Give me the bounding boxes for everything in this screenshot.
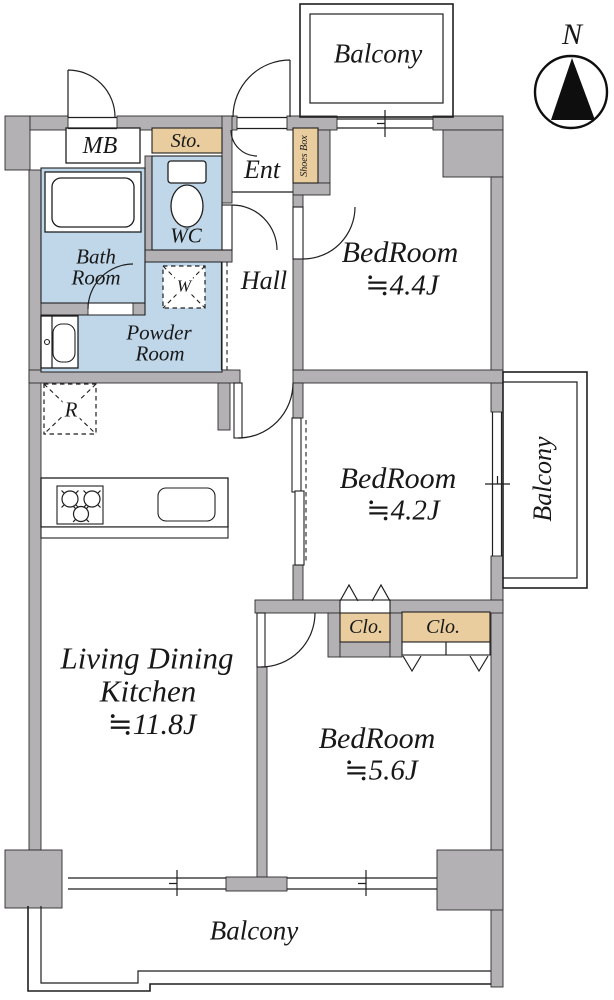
entrance-door-arc [233, 60, 290, 117]
closet-a-label: Clo. [349, 617, 383, 637]
bedroom-c-door-leaf [257, 613, 265, 667]
bedroom-b-name: BedRoom [340, 464, 457, 494]
ldk-size-label: ≒11.8J [108, 710, 197, 740]
bedroom-a-door-leaf [293, 207, 303, 259]
mb-label: MB [83, 134, 118, 158]
wc-door-leaf [222, 205, 232, 250]
bedroom-c-door-arc [261, 613, 315, 667]
entrance-label: Ent [244, 157, 280, 183]
floor-plan: N Balcony MB Sto. Ent Shoes Box WC Bath … [0, 0, 614, 1000]
storage-label: Sto. [171, 131, 202, 151]
compass-icon [535, 56, 607, 128]
ldk-door-arc [238, 383, 293, 438]
toilet-icon [168, 161, 206, 227]
mb-door-arc [68, 70, 115, 117]
bedroom-c-name: BedRoom [319, 724, 436, 754]
fridge-mark-label: R [63, 400, 80, 421]
ldk-label-line2: Kitchen [100, 676, 196, 707]
washer-mark-label: W [175, 278, 193, 295]
shoes-box-label: Shoes Box [300, 135, 310, 176]
compass-north-label: N [562, 20, 582, 50]
bathroom-label-line2: Room [72, 268, 121, 289]
powder-room-label-line1: Powder [126, 323, 191, 344]
stove-icon [57, 486, 103, 524]
balcony-right-label: Balcony [530, 436, 556, 521]
washbasin-icon [41, 316, 78, 368]
bathroom-label-line1: Bath [76, 247, 116, 268]
closet-b-label: Clo. [426, 617, 460, 637]
storage-door-arc [231, 130, 257, 156]
bedroom-a-size: ≒4.4J [365, 272, 438, 301]
hall-label: Hall [241, 268, 287, 294]
balcony-top-label: Balcony [334, 41, 422, 68]
bedroom-a-name: BedRoom [342, 238, 459, 268]
powder-room-label-line2: Room [136, 344, 185, 365]
kitchen-counter [41, 478, 228, 538]
bedroom-c-size: ≒5.6J [344, 757, 417, 786]
bedroom-b-size: ≒4.2J [366, 497, 439, 526]
wc-label: WC [170, 226, 202, 247]
balcony-bottom-label: Balcony [210, 918, 298, 945]
sink-icon [158, 488, 215, 521]
ldk-door-leaf [234, 383, 242, 438]
wc-door-arc [232, 205, 277, 250]
ldk-label-line1: Living Dining [60, 643, 233, 674]
bathtub-icon [45, 172, 141, 232]
